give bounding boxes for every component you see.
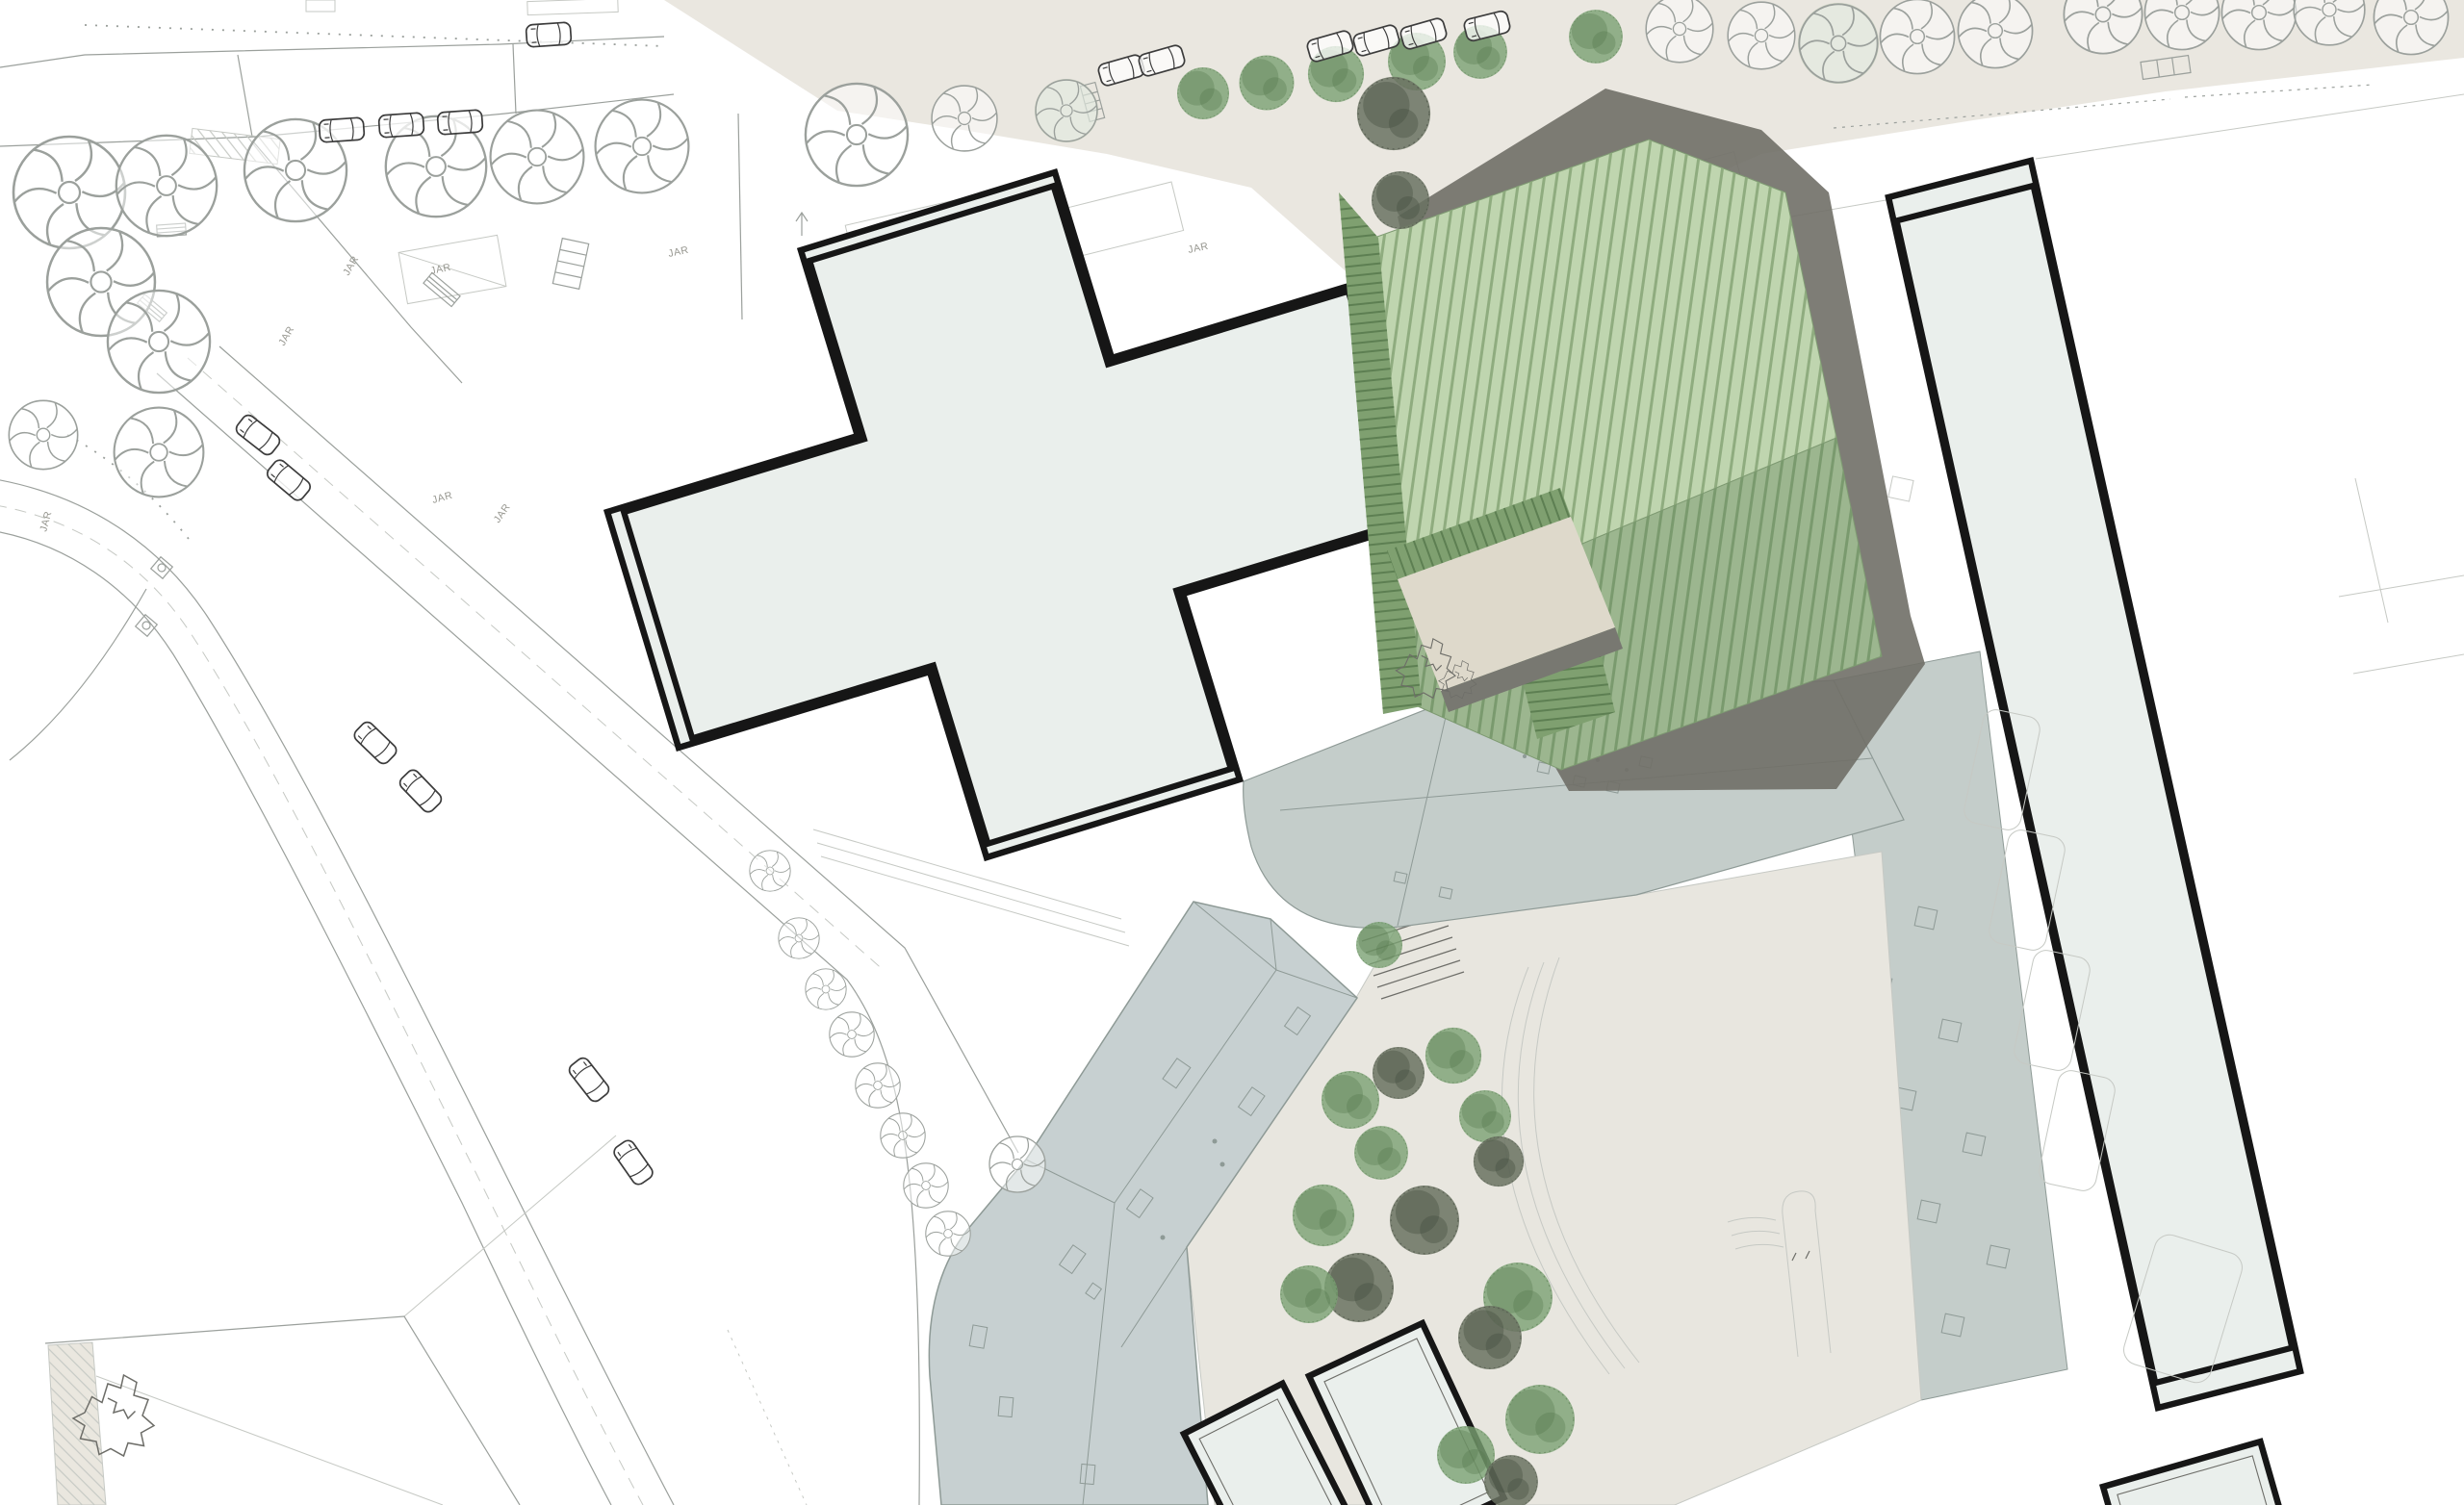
street-tree xyxy=(779,918,820,958)
street-tree xyxy=(904,1163,949,1208)
street-tree xyxy=(830,1012,875,1057)
street-tree xyxy=(595,100,688,193)
foliage-tree-dark xyxy=(1357,77,1430,150)
street-tree xyxy=(1646,0,1713,63)
parked-car xyxy=(378,113,423,138)
street-tree xyxy=(806,84,909,186)
foliage-tree xyxy=(1240,56,1295,111)
street-tree xyxy=(1728,2,1795,69)
street-tree xyxy=(1958,0,2032,68)
street-tree xyxy=(926,1212,971,1256)
plaza-tree xyxy=(1425,1028,1481,1084)
plaza-tree xyxy=(1354,1126,1408,1180)
site-plan-page: JAR JAR JAR JAR JAR JAR JAR JAR JAR JAR xyxy=(0,0,2464,1505)
street-tree xyxy=(108,291,211,393)
street-tree xyxy=(114,408,203,497)
street-tree xyxy=(932,86,997,151)
plaza-tree xyxy=(1459,1090,1511,1142)
plaza-tree xyxy=(1505,1385,1575,1454)
plaza-tree-dark xyxy=(1474,1136,1524,1186)
foliage-tree xyxy=(1177,67,1229,119)
parked-car xyxy=(319,117,364,142)
plaza-tree xyxy=(1280,1265,1338,1323)
parked-car xyxy=(526,22,571,47)
parked-car xyxy=(437,110,482,135)
plaza-tree-dark xyxy=(1458,1306,1522,1369)
plaza-tree xyxy=(1356,922,1402,968)
street-tree xyxy=(116,136,218,236)
street-tree xyxy=(1036,80,1097,141)
plaza-tree xyxy=(1293,1185,1354,1246)
street-tree xyxy=(806,969,847,1009)
street-tree xyxy=(9,400,78,469)
plaza-tree xyxy=(1322,1071,1379,1129)
street-tree xyxy=(1799,4,1878,82)
street-tree xyxy=(750,851,791,891)
site-plan-canvas: JAR JAR JAR JAR JAR JAR JAR JAR JAR JAR xyxy=(0,0,2464,1505)
street-tree xyxy=(856,1063,901,1108)
foliage-tree xyxy=(1569,10,1623,64)
plaza-tree-dark xyxy=(1373,1047,1424,1099)
street-tree xyxy=(1880,0,1954,74)
plaza-tree-dark xyxy=(1390,1186,1459,1255)
street-tree xyxy=(881,1113,926,1158)
street-tree xyxy=(989,1136,1045,1192)
street-tree xyxy=(490,111,583,204)
foliage-tree-dark xyxy=(1372,171,1429,229)
